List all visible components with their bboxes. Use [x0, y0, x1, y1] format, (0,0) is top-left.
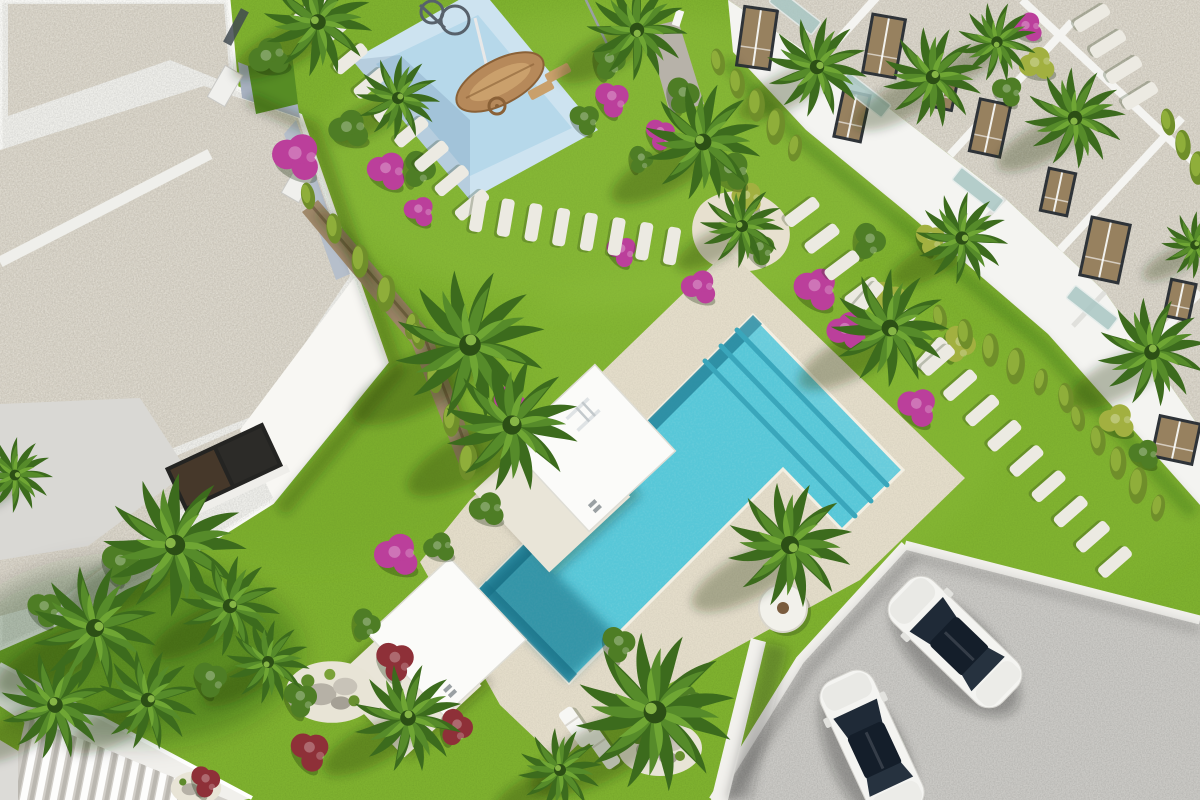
render-image: Aerial 3D architectural rendering of a r…	[0, 0, 1200, 800]
aerial-render-figure: Aerial 3D architectural rendering of a r…	[0, 0, 1200, 800]
palm-trunk	[777, 602, 789, 614]
cypress	[352, 244, 369, 278]
cypress	[1110, 446, 1127, 480]
scene-svg	[0, 0, 1200, 800]
cypress	[748, 88, 765, 122]
play-wheel-hub	[495, 104, 499, 108]
cypress	[982, 333, 999, 367]
